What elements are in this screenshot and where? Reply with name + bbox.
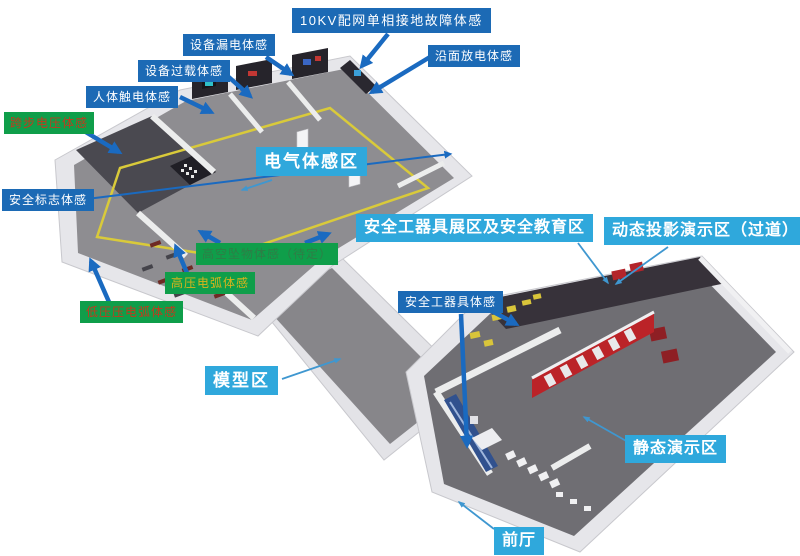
- label-falling-object: 高空坠物体感（待定）: [196, 243, 338, 265]
- label-hv-arc: 高压电弧体感: [165, 272, 255, 294]
- label-lobby: 前厅: [494, 527, 544, 555]
- label-equipment-overload: 设备过载体感: [138, 60, 230, 82]
- label-model-zone: 模型区: [205, 366, 278, 395]
- label-tool-exhibit-zone: 安全工器具展区及安全教育区: [356, 214, 593, 242]
- label-safety-tool: 安全工器具体感: [398, 291, 503, 313]
- label-dynamic-projection-zone: 动态投影演示区（过道）: [604, 217, 800, 245]
- label-electrical-zone: 电气体感区: [256, 147, 367, 176]
- label-human-shock: 人体触电体感: [86, 86, 178, 108]
- arrow-surface-discharge: [372, 57, 430, 92]
- label-step-voltage: 跨步电压体感: [4, 112, 94, 134]
- floorplan-3d-rendering: [0, 0, 800, 556]
- label-static-demo-zone: 静态演示区: [625, 435, 726, 463]
- label-kv10-fault: 10KV配网单相接地故障体感: [292, 8, 491, 33]
- label-safety-sign: 安全标志体感: [2, 189, 94, 211]
- label-surface-discharge: 沿面放电体感: [428, 45, 520, 67]
- arrow-kv10-fault: [362, 34, 388, 66]
- facility-floorplan-figure: 10KV配网单相接地故障体感 设备漏电体感 设备过载体感 人体触电体感 沿面放电…: [0, 0, 800, 556]
- label-lv-arc: 低压压电弧体感: [80, 301, 183, 323]
- label-equipment-leakage: 设备漏电体感: [183, 34, 275, 56]
